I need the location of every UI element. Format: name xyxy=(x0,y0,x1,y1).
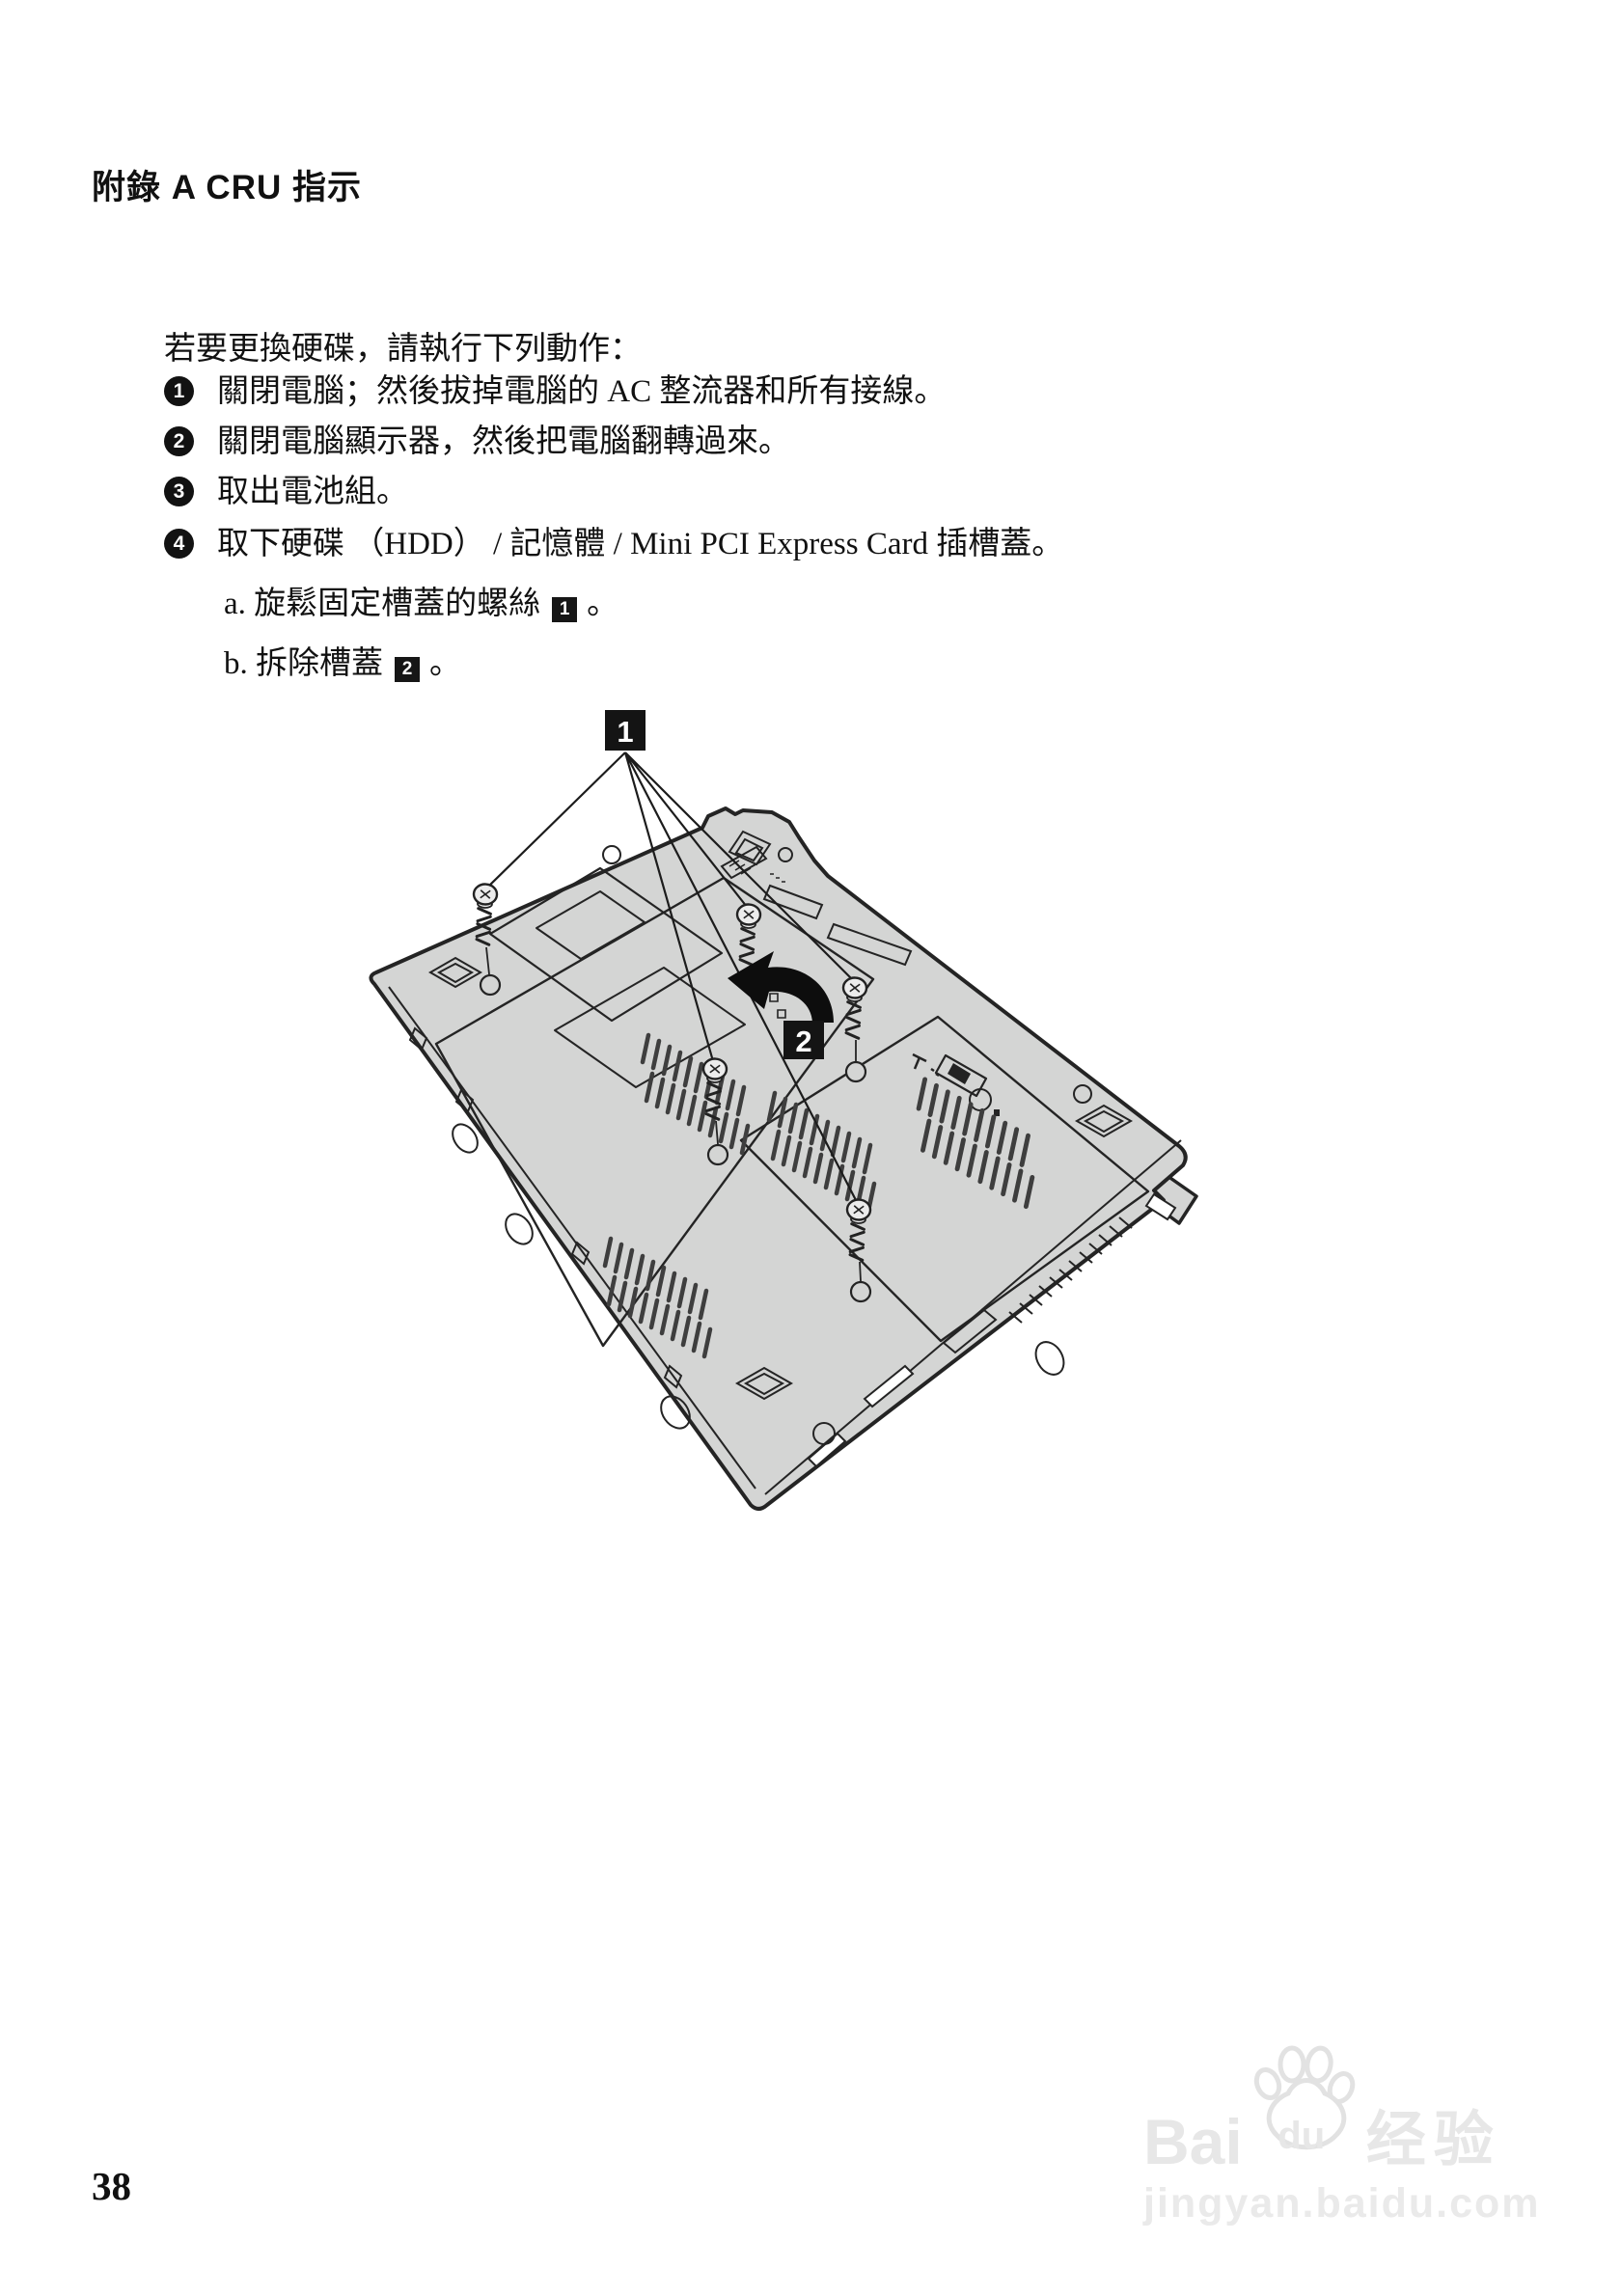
watermark-domain: jingyan.baidu.com xyxy=(1143,2180,1558,2228)
substep-suffix: 。 xyxy=(429,646,461,681)
step-row-4: 4 取下硬碟 （HDD） / 記憶體 / Mini PCI Express Ca… xyxy=(164,523,1063,565)
step-number-badge: 1 xyxy=(164,376,194,406)
watermark-logo: Bai du 经验 xyxy=(1143,2037,1558,2171)
callout-1-label: 1 xyxy=(605,710,646,751)
step-number-badge: 2 xyxy=(164,426,194,456)
callout-1-inline: 1 xyxy=(552,597,577,622)
page-number: 38 xyxy=(92,2163,131,2209)
substep-suffix: 。 xyxy=(587,587,618,621)
callout-2-inline: 2 xyxy=(395,657,420,682)
svg-text:2: 2 xyxy=(795,1025,811,1058)
step-row-2: 2 關閉電腦顯示器，然後把電腦翻轉過來。 xyxy=(164,421,790,463)
figure-laptop-bottom: 1 2 xyxy=(357,685,1225,1534)
baidu-paw-icon: du xyxy=(1245,2043,1359,2171)
watermark-brand-cjk: 经验 xyxy=(1366,2111,1501,2171)
step-text: 關閉電腦；然後拔掉電腦的 AC 整流器和所有接線。 xyxy=(217,370,946,413)
step-row-1: 1 關閉電腦；然後拔掉電腦的 AC 整流器和所有接線。 xyxy=(164,370,946,413)
step-text: 取出電池組。 xyxy=(217,471,408,513)
watermark-paw-text: du xyxy=(1278,2117,1325,2155)
substep-text: a. 旋鬆固定槽蓋的螺絲 xyxy=(224,587,540,621)
intro-text: 若要更換硬碟，請執行下列動作： xyxy=(164,328,642,370)
step-number-badge: 3 xyxy=(164,477,194,506)
manual-page: { "page": { "header": "附錄 A CRU 指示", "pa… xyxy=(0,0,1621,2296)
callout-2-label: 2 xyxy=(783,1021,824,1059)
substep-text: b. 拆除槽蓋 xyxy=(224,646,383,681)
step-number-badge: 4 xyxy=(164,529,194,559)
watermark-brand-latin: Bai xyxy=(1143,2113,1243,2171)
step-text: 取下硬碟 （HDD） / 記憶體 / Mini PCI Express Card… xyxy=(217,523,1063,565)
step-row-3: 3 取出電池組。 xyxy=(164,471,408,513)
page-title: 附錄 A CRU 指示 xyxy=(92,160,362,209)
battery-hole xyxy=(603,846,620,863)
svg-text:1: 1 xyxy=(617,715,633,749)
step-text: 關閉電腦顯示器，然後把電腦翻轉過來。 xyxy=(217,421,790,463)
substep-row-a: a. 旋鬆固定槽蓋的螺絲1。 xyxy=(224,583,618,625)
watermark: Bai du 经验 jingyan.baidu.com xyxy=(1143,2037,1558,2228)
substep-row-b: b. 拆除槽蓋2。 xyxy=(224,642,461,685)
